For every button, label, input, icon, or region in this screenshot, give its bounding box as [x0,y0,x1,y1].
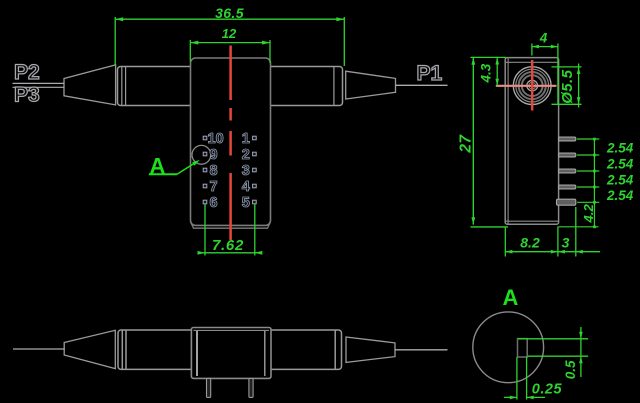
svg-text:27: 27 [458,134,475,154]
svg-text:3: 3 [242,163,250,179]
svg-text:7: 7 [210,179,218,195]
svg-text:2.54: 2.54 [606,188,634,203]
svg-text:12: 12 [222,26,237,41]
svg-text:A: A [150,154,166,179]
svg-text:2.54: 2.54 [606,172,634,187]
svg-text:2.54: 2.54 [606,140,634,155]
svg-text:P1: P1 [417,62,443,85]
svg-text:7.62: 7.62 [212,237,244,254]
svg-text:0.5: 0.5 [563,360,578,379]
svg-text:P2: P2 [14,61,40,84]
svg-text:5: 5 [242,195,250,211]
svg-text:P3: P3 [14,84,40,107]
svg-text:0.25: 0.25 [532,382,563,398]
svg-text:2.54: 2.54 [606,156,634,171]
svg-text:4.3: 4.3 [479,63,494,83]
svg-text:8.2: 8.2 [520,235,540,251]
svg-text:4.2: 4.2 [581,204,596,224]
svg-text:10: 10 [208,131,224,147]
svg-text:Ø5.5: Ø5.5 [559,69,576,103]
svg-text:2: 2 [242,147,250,163]
svg-text:A: A [503,285,519,310]
svg-text:8: 8 [210,163,218,179]
svg-text:9: 9 [210,147,218,163]
svg-text:3: 3 [562,235,570,251]
svg-text:1: 1 [242,131,250,147]
svg-text:4: 4 [242,179,250,195]
svg-text:4: 4 [539,31,548,46]
svg-text:6: 6 [210,195,218,211]
svg-text:36.5: 36.5 [215,5,244,21]
